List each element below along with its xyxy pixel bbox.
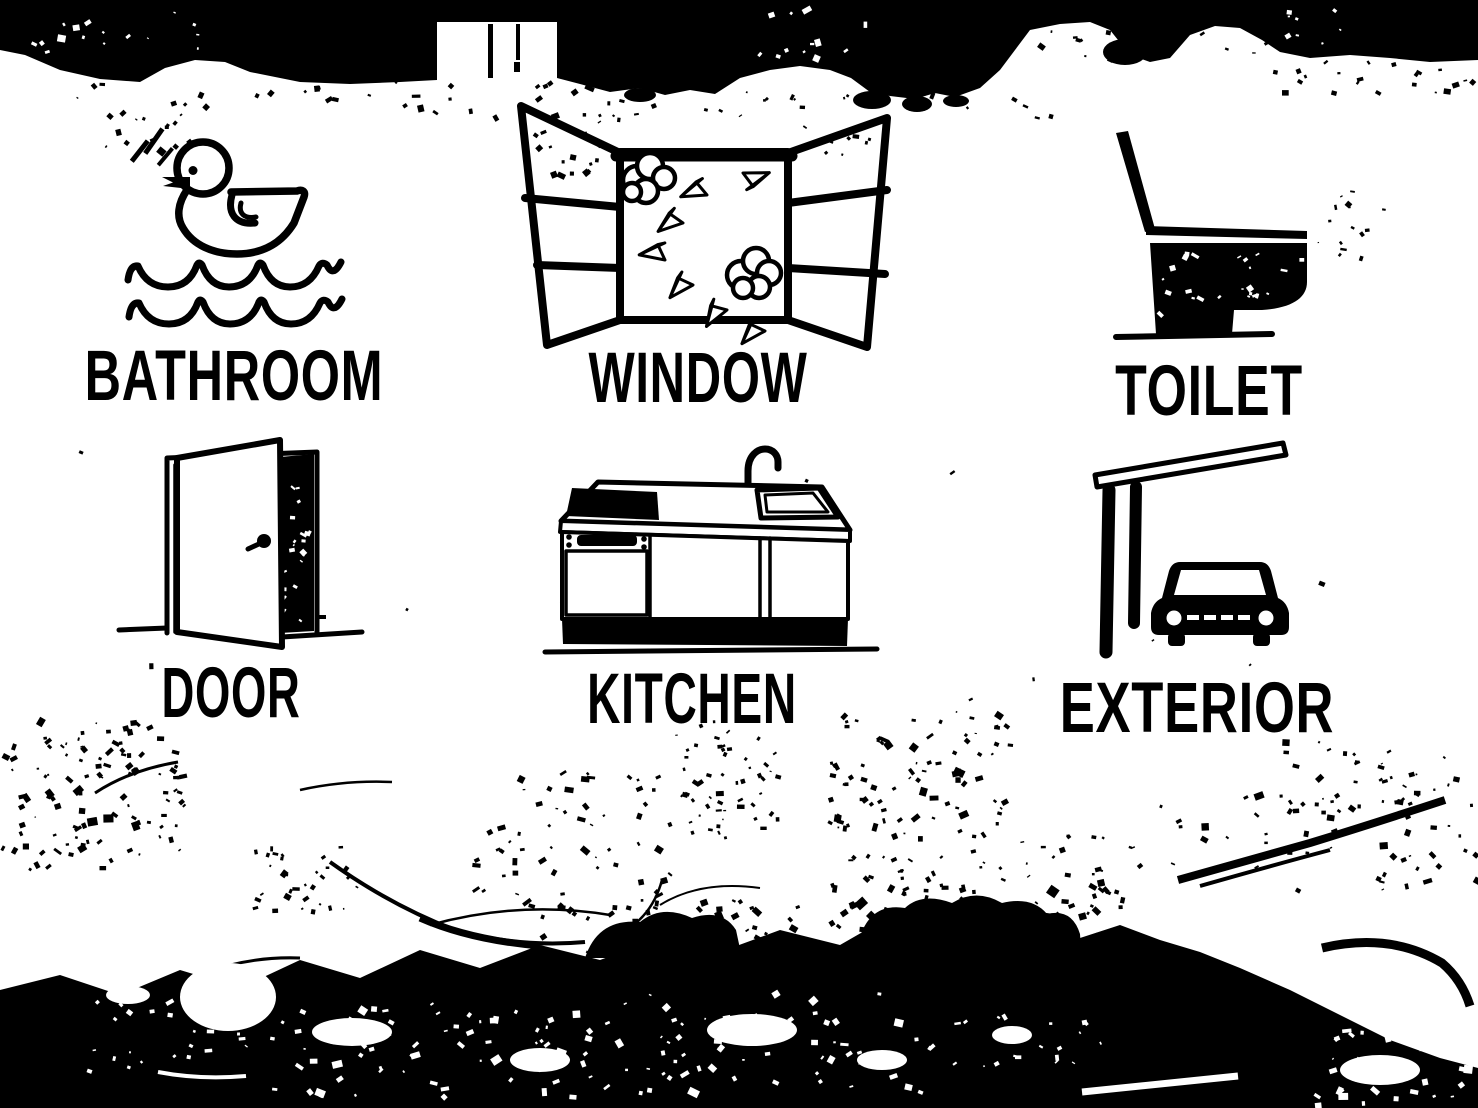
cooktop [566,488,659,520]
label-kitchen: KITCHEN [543,664,842,735]
label-exterior: EXTERIOR [1027,673,1367,744]
kitchen-sink-unit-icon [545,425,885,660]
car-front [1151,562,1289,646]
label-window: WINDOW [539,343,856,414]
toilet-side-view-icon [1110,130,1315,342]
label-toilet: TOILET [1041,356,1377,427]
label-bathroom: BATHROOM [71,341,398,412]
shed-shape [437,22,557,80]
water-waves [128,262,342,324]
signboard-photo: BATHROOM WINDOW TOILET DOOR KITCHEN EXTE… [0,0,1478,1108]
label-door: DOOR [84,658,378,729]
rubber-duck-on-waves-icon [105,135,355,340]
open-window-paper-planes-icon [515,95,895,355]
kickboard [562,619,848,646]
carport-with-car-icon [1085,430,1305,665]
carport-roof [1095,443,1286,487]
open-door-icon [115,430,370,662]
